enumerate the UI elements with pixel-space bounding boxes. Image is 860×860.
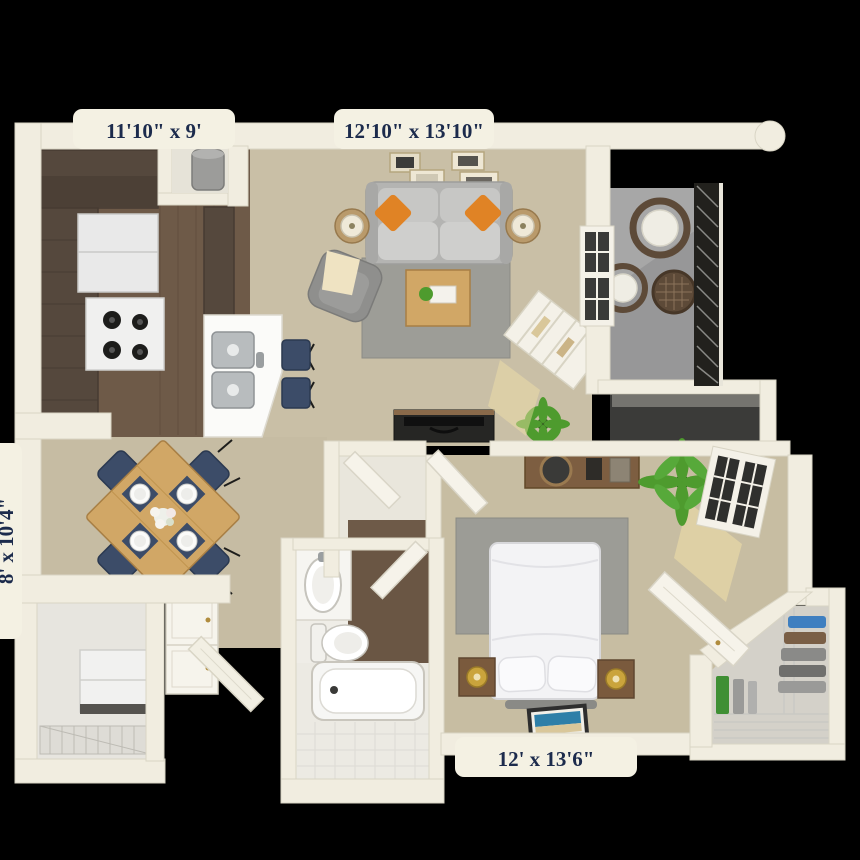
- clothes-gray-1: [781, 648, 826, 661]
- wall-laundry-right: [146, 601, 164, 761]
- utility-closet: [172, 146, 228, 193]
- toilet: [311, 624, 368, 662]
- green-boards: [716, 676, 729, 714]
- dresser-item-2: [610, 458, 630, 482]
- wall-bathroom-left: [281, 538, 296, 803]
- wall-end-knob: [755, 121, 785, 151]
- wall-closet-left: [690, 655, 712, 747]
- wicker-table: [653, 271, 695, 313]
- storage-closet-back-wall: [612, 395, 760, 407]
- bed: [490, 543, 600, 709]
- clothes-brown: [784, 632, 826, 644]
- balcony-railing: [694, 183, 723, 386]
- wall-kitchen-stub: [15, 413, 111, 439]
- wall-closet-bottom: [690, 744, 845, 760]
- kitchen-dimension-label: 11'10" x 9': [106, 119, 202, 143]
- dresser: [525, 452, 639, 488]
- wall-dining-laundry: [15, 575, 230, 603]
- living-dimension-label: 12'10" x 13'10": [344, 119, 484, 143]
- tv-screen: [404, 417, 484, 426]
- blue-basket: [788, 616, 826, 628]
- bedroom-dimension-label: 12' x 13'6": [498, 747, 595, 771]
- gray-board-1: [733, 679, 744, 714]
- wall-hall-left: [324, 441, 339, 577]
- sink-drain-1: [227, 344, 239, 356]
- pillow-left: [498, 656, 546, 692]
- counter-strip-right: [204, 207, 234, 317]
- side-table-lamp-left: [335, 209, 369, 243]
- dining-dimension-label: 8' x 10'4": [0, 498, 18, 584]
- side-table-lamp-right: [506, 209, 540, 243]
- sink-faucet: [256, 352, 264, 368]
- washer-dryer: [80, 650, 150, 712]
- closet-knob-1: [206, 618, 211, 623]
- coffee-table: [406, 270, 470, 326]
- wall-closet-right: [829, 588, 845, 760]
- pillow-right: [547, 656, 597, 692]
- wall-kitchen-living: [228, 146, 248, 206]
- wall-storage-top: [598, 380, 776, 394]
- wall-bedroom-top-left: [328, 441, 426, 456]
- clothes-gray-2: [779, 665, 826, 677]
- wall-bathroom-bottom: [281, 779, 444, 803]
- wall-laundry-bottom: [15, 759, 165, 783]
- floor-plan-image: 11'10" x 9' 12'10" x 13'10" 8' x 10'4" 1…: [0, 0, 860, 860]
- tub-drain: [330, 686, 338, 694]
- range: [86, 298, 164, 370]
- washer-dryer-controls: [80, 704, 150, 714]
- sink-drain-2: [227, 384, 239, 396]
- floor-plan-svg: 11'10" x 9' 12'10" x 13'10" 8' x 10'4" 1…: [0, 0, 860, 860]
- gray-board-2: [748, 681, 757, 714]
- cabinet-lower-shade: [38, 176, 158, 208]
- clothes-gray-3: [778, 681, 826, 693]
- tv-console: [394, 410, 494, 442]
- round-mirror: [541, 455, 571, 485]
- dining-area: [85, 439, 241, 595]
- refrigerator: [78, 214, 158, 292]
- table-plant: [419, 287, 433, 301]
- wall-bedroom-right: [788, 455, 812, 605]
- nightstand-left: [459, 658, 495, 696]
- bathtub: [312, 662, 424, 720]
- dresser-item-1: [586, 458, 602, 480]
- living-window: [580, 226, 614, 326]
- sofa: [366, 182, 512, 264]
- nightstand-right: [598, 660, 634, 698]
